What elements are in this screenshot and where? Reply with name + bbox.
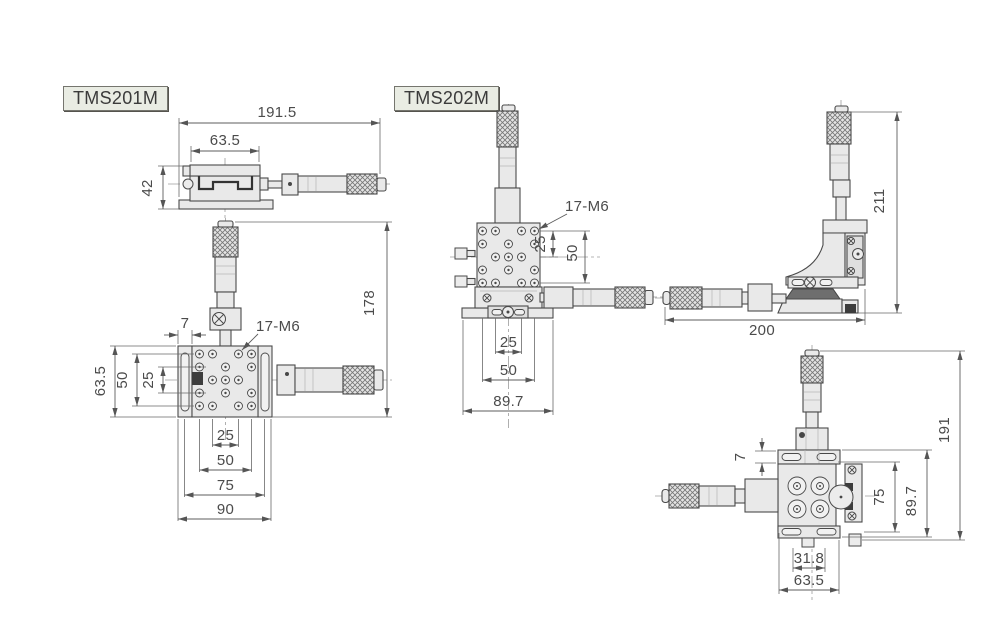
- knurl-grip: [827, 112, 851, 144]
- knurl-grip: [343, 366, 374, 394]
- svg-text:63.5: 63.5: [794, 572, 824, 589]
- micrometer-horizontal: [540, 287, 653, 308]
- svg-text:25: 25: [217, 427, 234, 444]
- micrometer-vertical: [827, 106, 851, 222]
- dim-7-plate: 7: [732, 438, 776, 476]
- svg-text:50: 50: [114, 371, 131, 388]
- svg-text:25: 25: [532, 235, 549, 252]
- knurl-grip: [670, 287, 702, 309]
- micrometer-vertical: [495, 105, 520, 223]
- knurl-grip: [497, 111, 518, 147]
- dims-bottom-stack: 25 50 89.7: [463, 318, 553, 415]
- svg-text:75: 75: [871, 488, 888, 505]
- svg-text:50: 50: [217, 452, 234, 469]
- tms201m-top-view: 7 17-M6 178 63.5 50: [92, 218, 392, 521]
- knurl-grip: [213, 227, 238, 257]
- stage-body: [778, 450, 862, 547]
- svg-text:191.5: 191.5: [257, 104, 296, 121]
- dim-7-left: 7: [164, 315, 206, 344]
- tms201m-side-view: 191.5 63.5 42: [139, 104, 392, 218]
- svg-text:90: 90: [217, 501, 234, 518]
- svg-text:211: 211: [871, 189, 888, 214]
- lock-screw: [192, 372, 203, 385]
- stage-body: [179, 165, 273, 209]
- micrometer-horizontal: [277, 365, 383, 395]
- drawing-canvas: 191.5 63.5 42: [0, 0, 998, 636]
- base-carriage: [462, 287, 553, 318]
- catalog-page: TMS201M TMS202M: [0, 0, 998, 636]
- svg-text:178: 178: [361, 290, 378, 316]
- tms202m-side-view: 211 200: [655, 100, 902, 339]
- bracket-body: [786, 220, 867, 285]
- micrometer-vertical: [210, 221, 241, 346]
- svg-text:200: 200: [749, 322, 775, 339]
- knurl-grip: [669, 484, 699, 508]
- svg-text:89.7: 89.7: [903, 486, 920, 516]
- knurl-grip: [615, 287, 645, 308]
- dim-31-8: 31.8: [793, 548, 825, 572]
- micrometer-horizontal: [662, 479, 778, 512]
- svg-text:50: 50: [500, 362, 517, 379]
- knurl-grip: [801, 356, 823, 383]
- knurl-grip: [347, 174, 377, 194]
- svg-text:75: 75: [217, 477, 234, 494]
- dim-63-5-side: 63.5: [191, 132, 259, 162]
- micrometer-horizontal: [663, 284, 786, 311]
- svg-text:25: 25: [500, 334, 517, 351]
- tms202m-bottom-view: 7 75 89.7 191 31.8: [655, 345, 965, 600]
- callout-17-m6: 17-M6: [242, 318, 300, 350]
- dim-191: 191: [820, 351, 965, 540]
- dims-bottom-stack: 25 50 75 90: [178, 419, 271, 521]
- svg-text:63.5: 63.5: [210, 132, 240, 149]
- svg-text:63.5: 63.5: [92, 366, 109, 396]
- svg-text:31.8: 31.8: [794, 550, 824, 567]
- svg-text:89.7: 89.7: [493, 393, 523, 410]
- base-carriage: [778, 277, 858, 313]
- svg-text:50: 50: [564, 244, 581, 261]
- micrometer-horizontal: [260, 174, 386, 195]
- tms202m-front-view: 17-M6 25 50 25 50 89.7: [450, 104, 665, 428]
- dim-42: 42: [139, 166, 183, 209]
- svg-text:7: 7: [181, 315, 190, 332]
- callout-17-m6: 17-M6: [539, 198, 609, 229]
- svg-text:17-M6: 17-M6: [565, 198, 609, 215]
- svg-text:42: 42: [139, 179, 156, 196]
- svg-text:191: 191: [936, 417, 953, 443]
- svg-text:7: 7: [732, 453, 749, 462]
- svg-text:17-M6: 17-M6: [256, 318, 300, 335]
- micrometer-vertical: [796, 350, 828, 450]
- svg-text:25: 25: [140, 371, 157, 388]
